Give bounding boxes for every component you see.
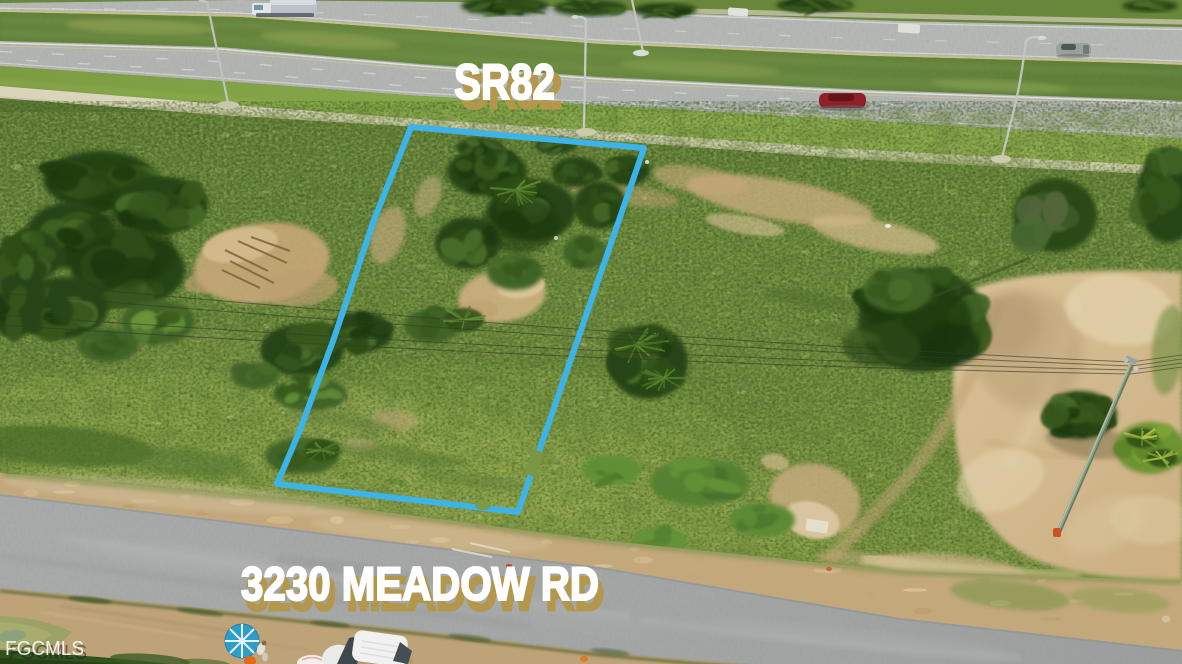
svg-text:FGCMLS: FGCMLS bbox=[5, 638, 84, 660]
svg-text:SR82: SR82 bbox=[454, 54, 555, 110]
svg-text:3230 MEADOW RD: 3230 MEADOW RD bbox=[241, 557, 599, 610]
